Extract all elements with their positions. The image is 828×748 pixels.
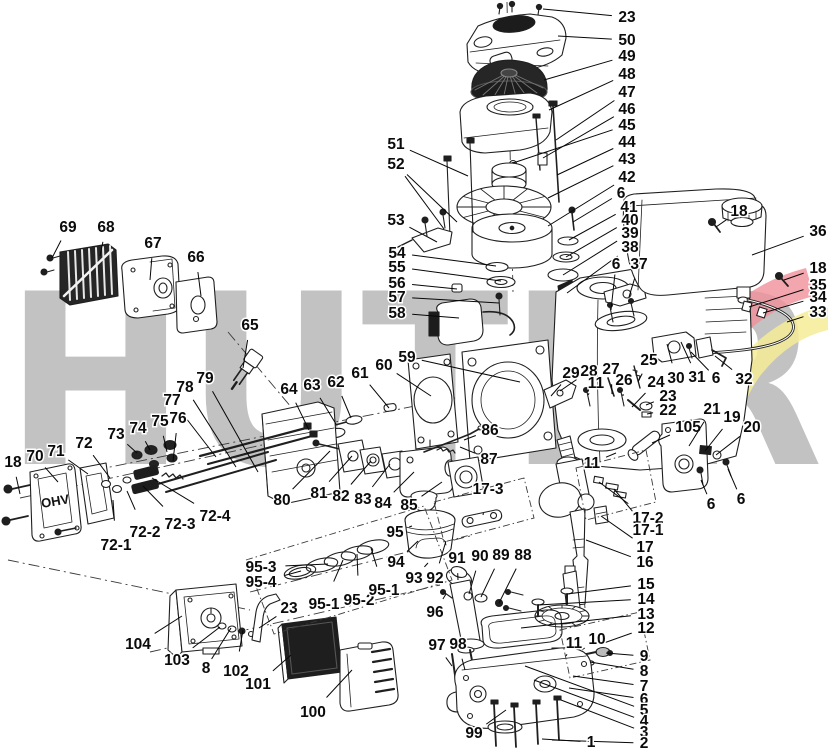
part-number-25: 25 [640, 352, 658, 369]
part-number-73: 73 [107, 426, 125, 443]
part-number-72-4: 72-4 [199, 508, 230, 525]
part-number-11: 11 [584, 455, 601, 472]
part-number-6: 6 [737, 491, 746, 508]
part-number-6: 6 [707, 496, 716, 513]
part-number-2: 2 [640, 735, 649, 748]
part-number-62: 62 [327, 374, 344, 391]
part-number-95-1: 95-1 [368, 582, 399, 599]
part-number-69: 69 [59, 219, 77, 236]
part-number-46: 46 [618, 101, 636, 118]
part-number-104: 104 [125, 636, 151, 653]
part-number-82: 82 [332, 488, 349, 505]
part-number-83: 83 [354, 491, 372, 508]
part-number-1: 1 [587, 734, 596, 748]
part-number-105: 105 [675, 419, 701, 436]
leader-line-51 [410, 150, 468, 176]
part-number-52: 52 [387, 156, 404, 173]
part-number-91: 91 [448, 550, 466, 567]
part-number-22: 22 [659, 402, 676, 419]
part-number-80: 80 [273, 492, 290, 509]
diagram-canvas: HUTER [0, 0, 828, 748]
part-number-84: 84 [374, 495, 392, 512]
part-number-101: 101 [245, 676, 271, 693]
part-number-70: 70 [26, 448, 43, 465]
part-number-23: 23 [280, 600, 298, 617]
part-number-18: 18 [730, 203, 748, 220]
part-number-50: 50 [618, 32, 635, 49]
part-number-92: 92 [426, 570, 443, 587]
part-number-77: 77 [163, 392, 180, 409]
leader-line-89 [481, 569, 495, 597]
part-number-51: 51 [387, 136, 405, 153]
leader-line-48 [549, 80, 613, 110]
leader-line-95-2 [357, 554, 358, 576]
part-number-16: 16 [636, 554, 654, 571]
part-number-88: 88 [514, 547, 532, 564]
part-number-38: 38 [621, 239, 639, 256]
part-number-57: 57 [388, 289, 405, 306]
cover-screws [497, 1, 541, 15]
part-number-49: 49 [618, 48, 636, 65]
part-number-63: 63 [303, 377, 321, 394]
part-number-59: 59 [398, 349, 416, 366]
leader-line-93 [424, 563, 428, 567]
part-number-103: 103 [164, 652, 190, 669]
part-number-21: 21 [703, 401, 721, 418]
part-number-8: 8 [202, 660, 211, 677]
part-number-99: 99 [465, 725, 483, 742]
part-number-32: 32 [735, 371, 752, 388]
part-number-42: 42 [618, 169, 635, 186]
part-number-6: 6 [612, 256, 621, 273]
part-number-85: 85 [400, 497, 418, 514]
part-number-44: 44 [618, 134, 636, 151]
control-panel [168, 584, 280, 657]
part-number-81: 81 [310, 485, 328, 502]
air-filter [278, 617, 398, 711]
part-number-64: 64 [280, 381, 298, 398]
part-number-60: 60 [375, 357, 392, 374]
part-number-37: 37 [630, 256, 647, 273]
part-number-26: 26 [615, 372, 633, 389]
part-number-53: 53 [387, 212, 405, 229]
part-number-17-1: 17-1 [632, 522, 663, 539]
leader-line-52 [407, 175, 457, 223]
part-number-65: 65 [241, 317, 259, 334]
part-number-75: 75 [151, 413, 169, 430]
leader-line-1 [542, 739, 580, 741]
part-number-72-3: 72-3 [164, 516, 195, 533]
exploded-parts-diagram: HUTER [0, 0, 828, 748]
part-number-95-4: 95-4 [245, 574, 276, 591]
part-number-61: 61 [351, 365, 369, 382]
part-number-20: 20 [743, 419, 760, 436]
leader-line-44 [557, 149, 613, 176]
part-number-95: 95 [386, 524, 404, 541]
part-number-86: 86 [481, 422, 499, 439]
part-number-19: 19 [723, 409, 741, 426]
part-number-79: 79 [196, 370, 214, 387]
part-number-94: 94 [387, 554, 405, 571]
part-number-45: 45 [618, 117, 636, 134]
part-number-29: 29 [562, 365, 580, 382]
part-number-100: 100 [300, 704, 326, 721]
part-number-12: 12 [637, 620, 654, 637]
part-number-76: 76 [169, 410, 187, 427]
part-number-23: 23 [618, 9, 636, 26]
exhaust-gasket [176, 277, 217, 333]
part-number-72-1: 72-1 [100, 537, 131, 554]
camshaft [504, 566, 590, 627]
part-number-30: 30 [667, 370, 684, 387]
leader-line-97 [446, 657, 452, 666]
part-number-18: 18 [809, 260, 827, 277]
part-number-31: 31 [688, 369, 706, 386]
part-number-48: 48 [618, 66, 636, 83]
part-number-11: 11 [566, 635, 583, 652]
part-number-68: 68 [97, 219, 115, 236]
leader-line-16 [586, 540, 631, 557]
part-number-47: 47 [618, 84, 635, 101]
leader-line-10 [582, 648, 585, 650]
part-number-90: 90 [471, 548, 488, 565]
part-number-33: 33 [809, 304, 827, 321]
part-number-17-3: 17-3 [472, 481, 503, 498]
part-number-72-2: 72-2 [129, 524, 160, 541]
part-number-95-1: 95-1 [308, 596, 339, 613]
part-number-96: 96 [426, 604, 444, 621]
part-number-10: 10 [588, 631, 605, 648]
part-number-98: 98 [449, 636, 467, 653]
leader-line-88 [499, 569, 516, 603]
part-number-74: 74 [129, 420, 147, 437]
leader-line-95-1 [371, 548, 377, 567]
part-number-18: 18 [4, 454, 22, 471]
part-number-97: 97 [428, 637, 445, 654]
part-number-72: 72 [75, 435, 92, 452]
part-number-36: 36 [809, 223, 827, 240]
part-number-67: 67 [144, 235, 161, 252]
leader-line-49 [544, 60, 612, 80]
leader-line-6 [573, 199, 612, 223]
part-number-71: 71 [47, 443, 65, 460]
part-number-58: 58 [388, 305, 406, 322]
part-number-93: 93 [405, 570, 423, 587]
part-number-66: 66 [187, 249, 205, 266]
part-number-87: 87 [480, 451, 497, 468]
part-number-43: 43 [618, 151, 636, 168]
part-number-89: 89 [492, 547, 510, 564]
part-number-11: 11 [588, 375, 605, 392]
leader-line-41 [569, 214, 616, 240]
part-number-6: 6 [712, 370, 721, 387]
leader-line-47 [556, 101, 614, 141]
leader-line-95-4 [285, 571, 302, 576]
leader-line-23 [543, 9, 612, 16]
part-number-55: 55 [388, 259, 406, 276]
